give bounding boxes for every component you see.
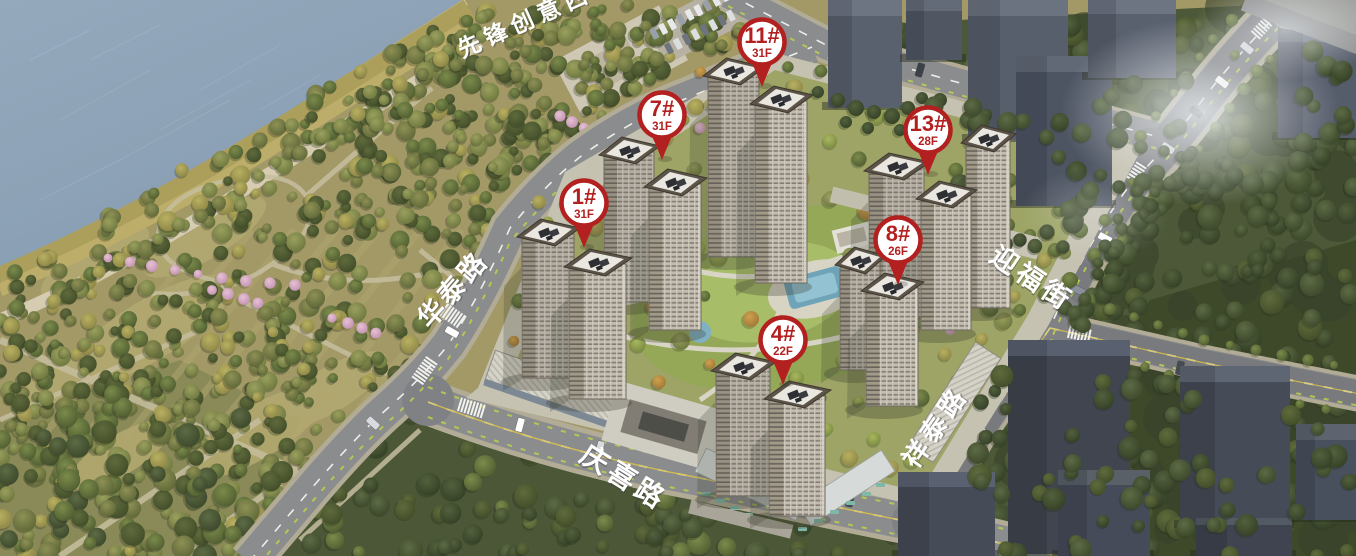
svg-text:31F: 31F	[652, 121, 672, 133]
svg-text:8#: 8#	[886, 221, 910, 246]
svg-text:31F: 31F	[752, 48, 772, 60]
svg-text:7#: 7#	[650, 96, 674, 121]
svg-text:28F: 28F	[918, 136, 938, 148]
svg-text:1#: 1#	[572, 184, 596, 209]
svg-text:26F: 26F	[888, 246, 908, 258]
svg-text:22F: 22F	[773, 346, 793, 358]
svg-text:11#: 11#	[744, 23, 780, 48]
svg-text:4#: 4#	[771, 321, 795, 346]
svg-text:13#: 13#	[910, 111, 947, 136]
svg-text:31F: 31F	[574, 209, 594, 221]
